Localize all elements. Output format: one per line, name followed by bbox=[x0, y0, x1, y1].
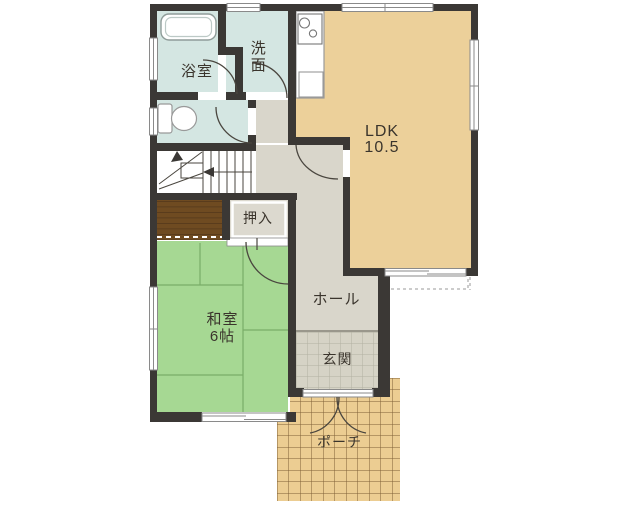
toilet-icon bbox=[158, 104, 197, 133]
washitsu-name: 和室 bbox=[206, 311, 238, 328]
washitsu-size: 6帖 bbox=[210, 328, 235, 345]
ldk-bottom-sliding-door bbox=[385, 269, 466, 277]
hall-corridor-stairs bbox=[256, 145, 343, 195]
bathroom-label: 浴室 bbox=[169, 64, 225, 80]
washroom-label: 洗面 bbox=[249, 35, 265, 79]
toilet-left-window bbox=[150, 108, 158, 135]
ldk-name: LDK bbox=[365, 123, 399, 140]
kitchen-counter-icon bbox=[296, 11, 324, 98]
bathtub-icon bbox=[161, 14, 216, 40]
hall-mid bbox=[296, 195, 343, 268]
hall-corridor-nook bbox=[256, 100, 288, 143]
ldk-label: LDK10.5 bbox=[340, 124, 424, 156]
ldk-floor-lower bbox=[350, 145, 471, 268]
genkan-label: 玄関 bbox=[295, 352, 380, 367]
sink-icon bbox=[299, 72, 323, 97]
washitsu-label: 和室6帖 bbox=[180, 312, 265, 345]
ldk-top-window bbox=[342, 4, 433, 12]
floor-plan: 浴室 洗面 LDK10.5 押入 和室6帖 ホール 玄関 ポーチ bbox=[0, 0, 640, 512]
ldk-size: 10.5 bbox=[364, 139, 399, 156]
eaves-dashed-outline bbox=[385, 277, 470, 290]
porch-tile-grid bbox=[277, 415, 290, 501]
under-stairs-storage bbox=[157, 200, 222, 240]
porch-label: ポーチ bbox=[297, 435, 382, 450]
closet-label: 押入 bbox=[228, 211, 288, 226]
hall-label: ホール bbox=[294, 292, 379, 308]
washitsu-left-window bbox=[150, 287, 158, 370]
washitsu-bottom-sliding-window bbox=[202, 413, 286, 422]
bathroom-left-window bbox=[150, 38, 158, 80]
entrance-threshold bbox=[303, 390, 373, 398]
washroom-top-window bbox=[227, 4, 260, 12]
ldk-right-window bbox=[470, 40, 479, 130]
